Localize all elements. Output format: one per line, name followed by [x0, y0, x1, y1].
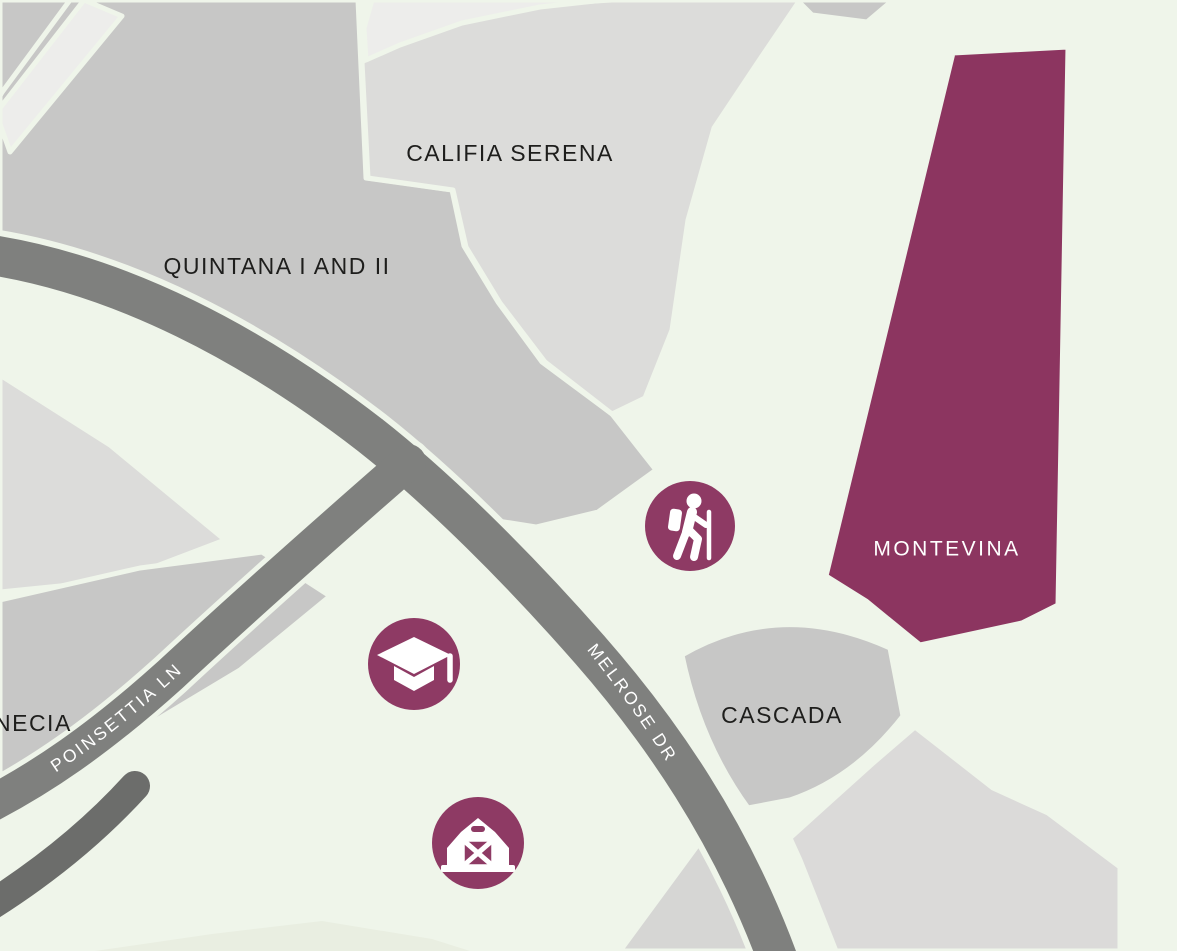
- map-canvas: POINSETTIA LN MELROSE DR: [0, 0, 1177, 951]
- marker-graduation-cap[interactable]: [368, 618, 460, 710]
- label-califia-serena: CALIFIA SERENA: [406, 140, 614, 166]
- label-montevina: MONTEVINA: [873, 538, 1020, 561]
- label-quintana-i-and-ii: QUINTANA I AND II: [164, 253, 391, 279]
- marker-hiker[interactable]: [645, 481, 735, 571]
- label-cascada: CASCADA: [721, 702, 843, 728]
- map: POINSETTIA LN MELROSE DR: [0, 0, 1177, 951]
- marker-barn[interactable]: [432, 797, 524, 889]
- label-necia: NECIA: [0, 710, 72, 736]
